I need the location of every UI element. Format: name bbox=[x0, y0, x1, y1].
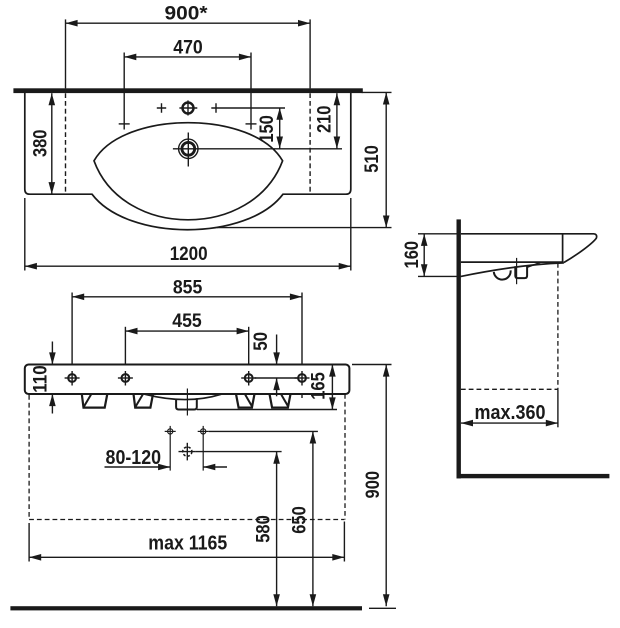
svg-text:max 1165: max 1165 bbox=[148, 532, 227, 554]
svg-text:150: 150 bbox=[257, 115, 278, 143]
svg-text:510: 510 bbox=[362, 145, 383, 173]
svg-text:110: 110 bbox=[31, 365, 52, 393]
svg-text:160: 160 bbox=[402, 241, 423, 269]
svg-text:900: 900 bbox=[363, 471, 384, 499]
svg-text:80-120: 80-120 bbox=[106, 447, 162, 469]
svg-text:50: 50 bbox=[251, 332, 272, 351]
svg-text:855: 855 bbox=[173, 278, 203, 299]
svg-text:380: 380 bbox=[31, 130, 52, 158]
svg-text:470: 470 bbox=[173, 38, 203, 59]
svg-text:900*: 900* bbox=[165, 3, 209, 24]
svg-text:210: 210 bbox=[315, 106, 336, 134]
svg-text:455: 455 bbox=[172, 311, 202, 332]
svg-text:650: 650 bbox=[289, 506, 310, 534]
svg-text:165: 165 bbox=[309, 372, 330, 400]
svg-text:max.360: max.360 bbox=[475, 402, 546, 424]
svg-text:1200: 1200 bbox=[170, 244, 208, 265]
